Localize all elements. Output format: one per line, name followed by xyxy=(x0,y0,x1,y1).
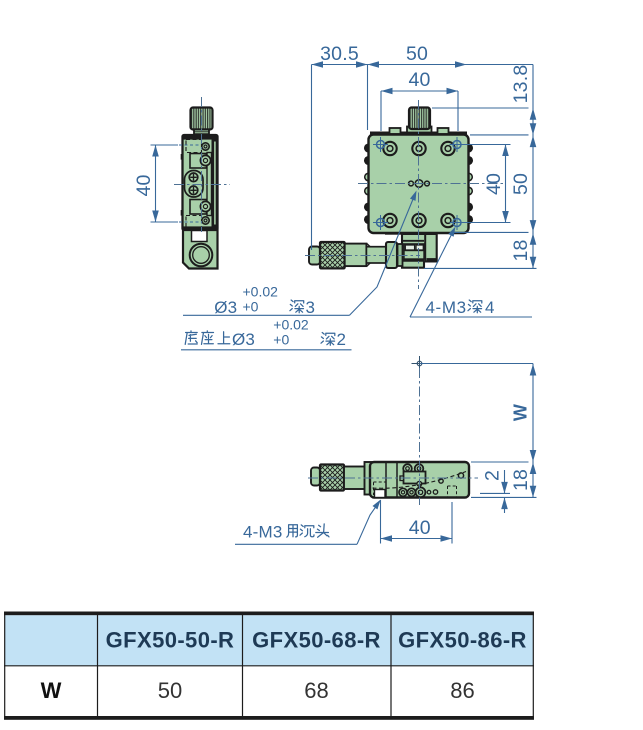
svg-text:Ø3: Ø3 xyxy=(232,330,255,349)
svg-text:50: 50 xyxy=(406,43,428,65)
svg-text:W: W xyxy=(41,678,62,703)
svg-text:Ø3: Ø3 xyxy=(214,298,237,317)
svg-text:4: 4 xyxy=(485,298,495,317)
svg-text:68: 68 xyxy=(304,678,328,703)
svg-text:GFX50-68-R: GFX50-68-R xyxy=(252,628,381,653)
svg-text:86: 86 xyxy=(450,678,474,703)
svg-text:30.5: 30.5 xyxy=(320,43,359,65)
svg-text:13.8: 13.8 xyxy=(510,65,532,104)
svg-text:GFX50-50-R: GFX50-50-R xyxy=(106,628,235,653)
svg-text:40: 40 xyxy=(408,69,430,91)
svg-text:+0.02: +0.02 xyxy=(273,317,309,333)
svg-text:2: 2 xyxy=(337,330,347,349)
svg-text:3: 3 xyxy=(306,298,316,317)
svg-text:+0: +0 xyxy=(243,299,259,315)
svg-text:50: 50 xyxy=(158,678,182,703)
svg-text:50: 50 xyxy=(510,173,532,195)
svg-text:18: 18 xyxy=(510,239,532,261)
svg-text:40: 40 xyxy=(409,517,431,539)
svg-text:40: 40 xyxy=(133,174,155,196)
svg-text:18: 18 xyxy=(510,469,532,491)
svg-text:+0.02: +0.02 xyxy=(243,284,279,300)
svg-text:2: 2 xyxy=(482,470,504,481)
svg-text:+0: +0 xyxy=(273,332,289,348)
svg-text:4-M3: 4-M3 xyxy=(426,298,467,317)
svg-text:40: 40 xyxy=(483,173,505,195)
svg-text:GFX50-86-R: GFX50-86-R xyxy=(398,628,527,653)
svg-text:W: W xyxy=(511,404,531,421)
svg-text:4-M3: 4-M3 xyxy=(243,523,283,542)
